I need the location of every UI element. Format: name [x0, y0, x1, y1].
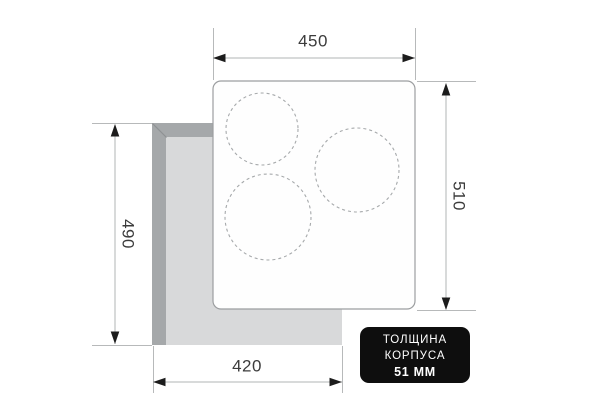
arrow-down-icon	[442, 298, 451, 311]
dim-top-width-label: 450	[298, 32, 328, 51]
arrow-right-icon	[403, 54, 416, 63]
badge-line-3: 51 ММ	[394, 365, 436, 379]
dimension-bottom-width: 420	[153, 346, 343, 393]
arrow-right-icon	[330, 378, 343, 387]
dim-bottom-width-label: 420	[232, 357, 262, 376]
badge-line-1: ТОЛЩИНА	[383, 334, 447, 346]
glass-panel-group	[213, 81, 415, 309]
badge-line-2: КОРПУСА	[385, 350, 446, 362]
arrow-up-icon	[111, 124, 120, 137]
body-thickness-badge: ТОЛЩИНА КОРПУСА 51 ММ	[360, 327, 470, 383]
diagram-canvas: 450 510 490 420	[0, 0, 600, 420]
hob-dimension-diagram: 450 510 490 420	[0, 0, 600, 420]
dim-left-height-label: 490	[119, 219, 138, 249]
arrow-left-icon	[213, 54, 226, 63]
dimension-right-height: 510	[417, 82, 476, 311]
dimension-left-height: 490	[92, 124, 152, 346]
arrow-up-icon	[442, 83, 451, 96]
arrow-down-icon	[111, 332, 120, 345]
dim-right-height-label: 510	[450, 181, 469, 211]
arrow-left-icon	[153, 378, 166, 387]
dimension-top-width: 450	[213, 28, 416, 80]
glass-panel	[213, 81, 415, 309]
